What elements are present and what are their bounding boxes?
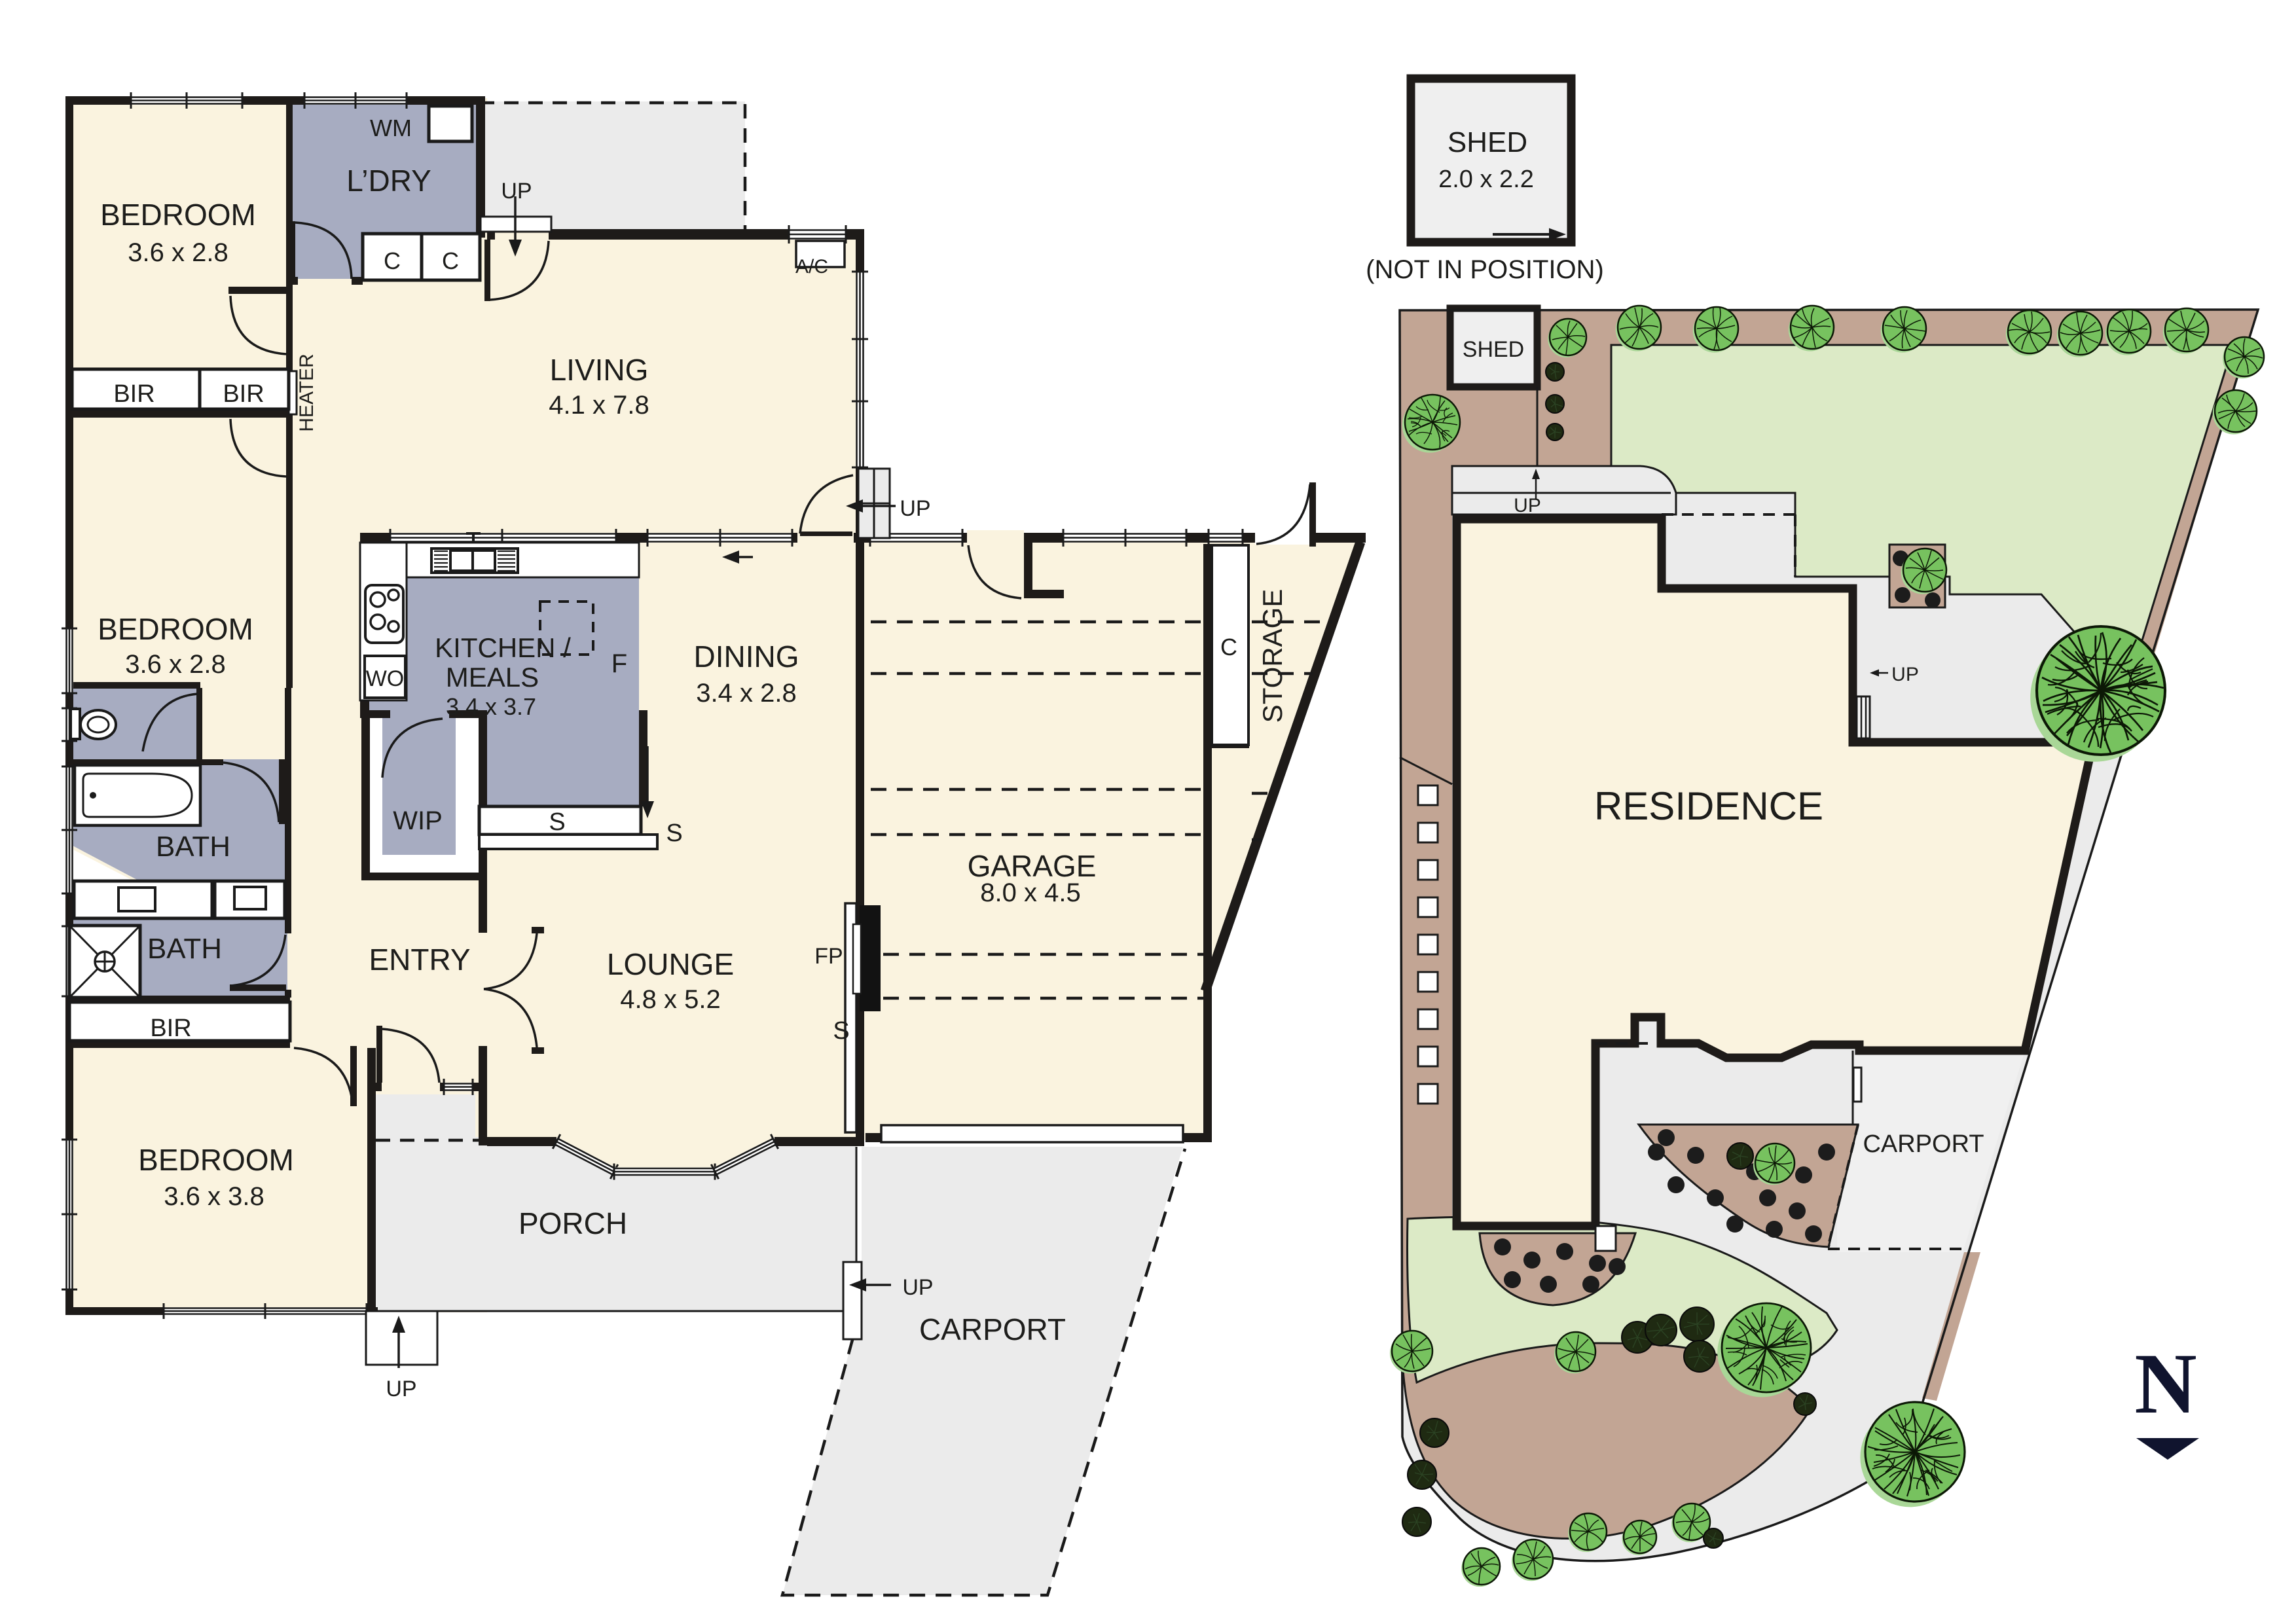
svg-text:WIP: WIP <box>393 806 443 835</box>
svg-text:3.6 x 3.8: 3.6 x 3.8 <box>164 1182 264 1211</box>
svg-text:3.4 x 2.8: 3.4 x 2.8 <box>696 679 796 708</box>
svg-text:S: S <box>549 808 565 836</box>
svg-text:C: C <box>442 247 459 274</box>
svg-text:F: F <box>611 649 627 678</box>
svg-text:3.4 x 3.7: 3.4 x 3.7 <box>446 693 536 720</box>
svg-text:ENTRY: ENTRY <box>369 943 470 977</box>
svg-text:BIR: BIR <box>113 380 155 408</box>
svg-text:BEDROOM: BEDROOM <box>138 1143 294 1177</box>
svg-text:S: S <box>666 820 682 847</box>
svg-text:N: N <box>2134 1335 2196 1432</box>
svg-text:RESIDENCE: RESIDENCE <box>1594 784 1823 828</box>
svg-text:STORAGE: STORAGE <box>1257 589 1288 723</box>
svg-text:PORCH: PORCH <box>519 1206 627 1240</box>
svg-text:WM: WM <box>370 115 412 141</box>
svg-text:UP: UP <box>900 496 930 521</box>
svg-text:4.8 x 5.2: 4.8 x 5.2 <box>620 985 720 1014</box>
svg-text:A/C: A/C <box>795 256 828 278</box>
svg-text:UP: UP <box>1891 664 1919 685</box>
svg-text:C: C <box>384 247 401 274</box>
svg-text:HEATER: HEATER <box>296 353 318 431</box>
svg-text:KITCHEN /: KITCHEN / <box>435 632 571 663</box>
svg-text:UP: UP <box>386 1377 416 1401</box>
svg-text:SHED: SHED <box>1448 126 1527 158</box>
svg-text:DINING: DINING <box>694 640 799 674</box>
svg-text:WO: WO <box>366 666 405 691</box>
svg-text:UP: UP <box>902 1275 933 1300</box>
svg-text:FP: FP <box>814 944 843 969</box>
svg-text:BEDROOM: BEDROOM <box>98 612 253 646</box>
svg-text:SHED: SHED <box>1463 337 1524 362</box>
svg-text:MEALS: MEALS <box>446 662 539 693</box>
svg-text:BIR: BIR <box>150 1015 191 1042</box>
svg-text:S: S <box>833 1017 849 1045</box>
svg-text:4.1 x 7.8: 4.1 x 7.8 <box>549 391 649 420</box>
svg-text:8.0 x 4.5: 8.0 x 4.5 <box>980 878 1080 907</box>
svg-text:3.6 x 2.8: 3.6 x 2.8 <box>125 650 225 679</box>
svg-text:CARPORT: CARPORT <box>1863 1130 1984 1158</box>
svg-text:BIR: BIR <box>223 380 264 408</box>
svg-text:3.6 x 2.8: 3.6 x 2.8 <box>128 238 228 267</box>
svg-text:UP: UP <box>501 179 532 204</box>
svg-text:BATH: BATH <box>156 831 230 863</box>
svg-text:UP: UP <box>1514 495 1541 516</box>
svg-text:2.0 x 2.2: 2.0 x 2.2 <box>1438 166 1534 193</box>
svg-text:LOUNGE: LOUNGE <box>607 947 734 981</box>
svg-text:LIVING: LIVING <box>550 353 649 387</box>
svg-text:C: C <box>1220 634 1237 660</box>
svg-text:BATH: BATH <box>147 933 222 965</box>
svg-text:(NOT IN POSITION): (NOT IN POSITION) <box>1366 255 1604 284</box>
svg-text:BEDROOM: BEDROOM <box>100 198 256 232</box>
svg-text:L’DRY: L’DRY <box>346 164 431 198</box>
svg-text:CARPORT: CARPORT <box>919 1312 1066 1346</box>
